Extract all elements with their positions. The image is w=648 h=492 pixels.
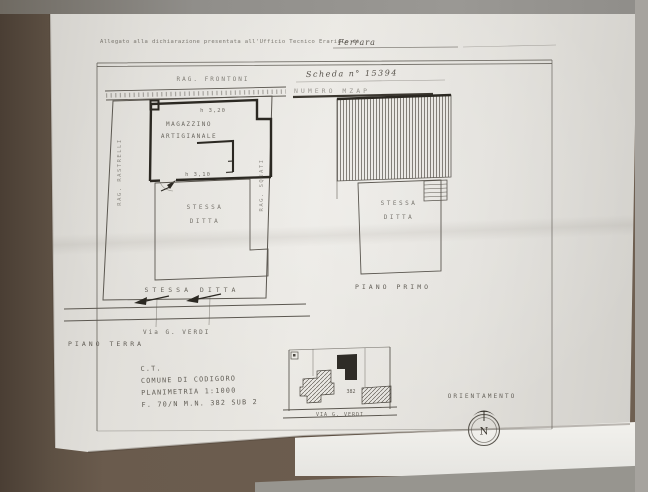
paper-bottom-edge-shadow [88,424,630,452]
floor-plan-drawing: Allegato alla dichiarazione presentata a… [0,0,648,492]
header-place: Ferrara [337,38,376,47]
neighbor-left-label: RAG. RASTRELLI [117,138,123,205]
room-name-line2: ARTIGIANALE [161,133,217,140]
info-line4: F. 70/N M.N. 382 SUB 2 [141,398,258,409]
scheda-header: Scheda n° 15394 NUMERO MZAP [293,68,445,97]
scheda-number: Scheda n° 15394 [306,68,398,79]
info-line2: COMUNE DI CODIGORO [141,375,236,385]
map-parcel-number: 382 [346,389,355,395]
map-building-solid [337,354,357,380]
first-floor-room-outline [358,180,441,274]
location-map: 382 VIA G. VERDI [283,347,397,418]
owner-line2: DITTA [384,214,415,221]
neighbor-top-label: RAG. FRONTONI [177,76,250,83]
owner-bottom-label: STESSA DITTA [145,286,240,294]
first-floor-caption: PIANO PRIMO [355,283,431,291]
street-label: Via G. VERDI [143,329,210,336]
room-name-line1: MAGAZZINO [166,121,212,128]
compass-north-letter: N [480,427,489,438]
photographed-document: Allegato alla dichiarazione presentata a… [0,0,648,492]
owner-line1: STESSA [381,200,418,207]
map-building-hatched-left [300,370,334,403]
room-height-mid: h 3,10 [185,172,211,178]
map-building-hatched-right [362,386,391,404]
entrance-arrow-icon [134,296,169,305]
stairs [424,180,447,201]
document-header: Allegato alla dichiarazione presentata a… [100,38,556,48]
cadastral-info-block: C.T. COMUNE DI CODIGORO PLANIMETRIA 1:10… [140,362,258,409]
owner-mid-line2: DITTA [190,218,221,225]
courtyard-outline [155,179,268,280]
ground-floor-caption: PIANO TERRA [68,340,144,348]
hatched-roof-area [337,95,451,181]
info-line3: PLANIMETRIA 1:1000 [141,387,236,397]
scheda-subtitle: NUMERO MZAP [294,87,370,95]
orientation-block: ORIENTAMENTO N [448,393,517,446]
header-note: Allegato alla dichiarazione presentata a… [100,39,360,45]
owner-mid-line1: STESSA [187,204,224,211]
room-height-top: h 3,20 [200,108,226,114]
ground-floor-plan: RAG. FRONTONI h 3,20 MAGAZZ [64,76,310,348]
map-street-label: VIA G. VERDI [316,412,364,418]
orientation-label: ORIENTAMENTO [448,393,517,400]
neighbor-right-label: RAG. SQUATI [259,159,265,212]
first-floor-plan: STESSA DITTA PIANO PRIMO [337,95,451,291]
paper-left-edge-shadow [50,14,55,448]
info-line1: C.T. [140,364,161,373]
interior-partition-wall [197,141,233,172]
